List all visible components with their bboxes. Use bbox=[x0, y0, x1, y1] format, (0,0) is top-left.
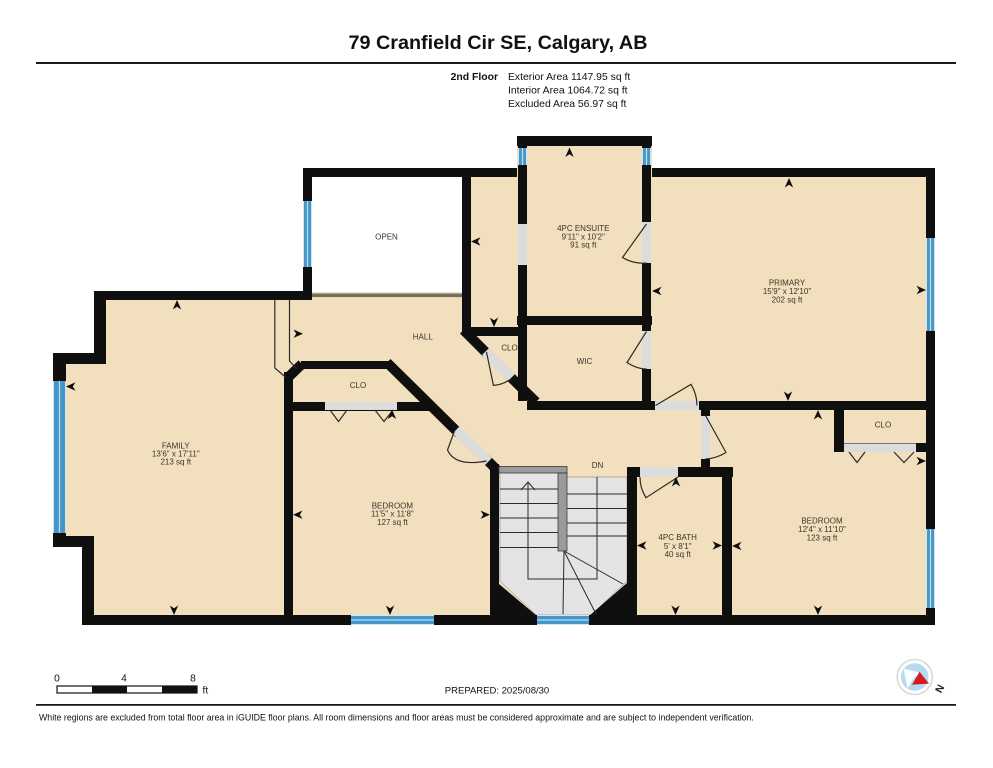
svg-text:2nd Floor: 2nd Floor bbox=[451, 72, 498, 83]
svg-text:Exterior Area 1147.95 sq ft: Exterior Area 1147.95 sq ft bbox=[508, 72, 630, 83]
svg-text:CLO: CLO bbox=[350, 381, 366, 390]
svg-text:WIC: WIC bbox=[577, 357, 593, 366]
svg-text:123 sq ft: 123 sq ft bbox=[807, 534, 838, 543]
svg-text:White regions are excluded fro: White regions are excluded from total fl… bbox=[39, 713, 754, 723]
svg-text:OPEN: OPEN bbox=[375, 233, 398, 242]
svg-text:91 sq ft: 91 sq ft bbox=[570, 240, 597, 249]
svg-text:40 sq ft: 40 sq ft bbox=[665, 550, 692, 559]
svg-text:CLO: CLO bbox=[875, 421, 891, 430]
svg-text:ft: ft bbox=[203, 686, 209, 697]
svg-text:202 sq ft: 202 sq ft bbox=[772, 295, 803, 304]
svg-text:213 sq ft: 213 sq ft bbox=[160, 457, 191, 466]
svg-text:127 sq ft: 127 sq ft bbox=[377, 518, 408, 527]
svg-text:79 Cranfield Cir SE, Calgary,: 79 Cranfield Cir SE, Calgary, AB bbox=[348, 32, 647, 54]
svg-text:4: 4 bbox=[121, 674, 127, 685]
svg-text:PREPARED: 2025/08/30: PREPARED: 2025/08/30 bbox=[445, 686, 549, 697]
svg-text:Interior Area 1064.72 sq ft: Interior Area 1064.72 sq ft bbox=[508, 86, 628, 97]
svg-text:DN: DN bbox=[592, 461, 604, 470]
svg-text:0: 0 bbox=[54, 674, 60, 685]
svg-text:CLO: CLO bbox=[501, 344, 517, 353]
svg-text:HALL: HALL bbox=[413, 333, 434, 342]
svg-text:8: 8 bbox=[190, 674, 196, 685]
svg-text:Excluded Area 56.97 sq ft: Excluded Area 56.97 sq ft bbox=[508, 99, 627, 110]
